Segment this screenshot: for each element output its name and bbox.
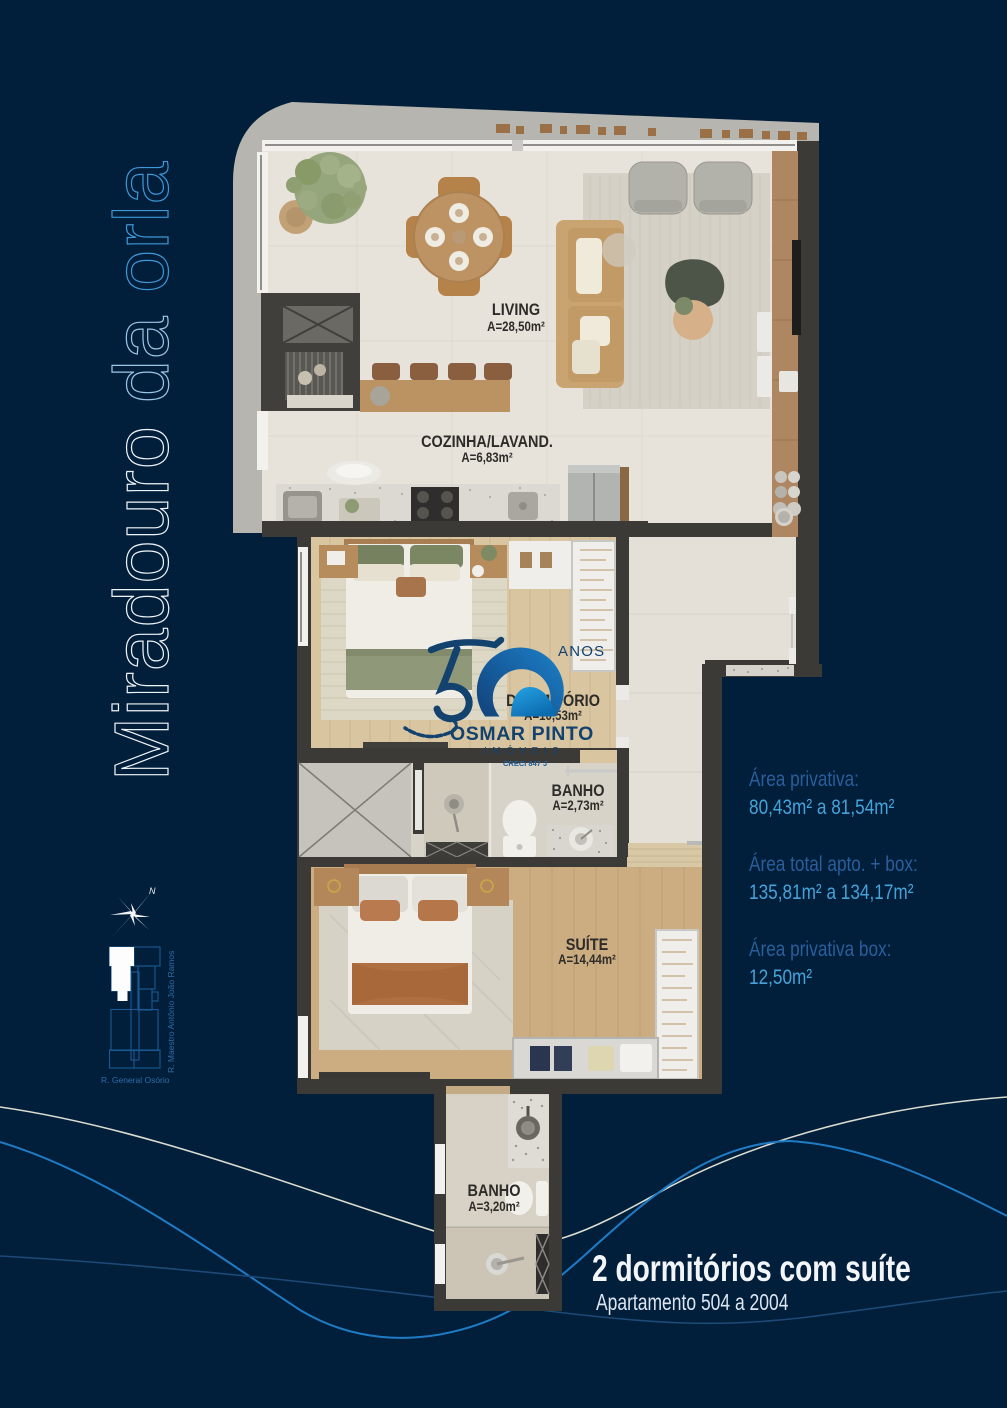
svg-text:COZINHA/LAVAND.: COZINHA/LAVAND. <box>421 433 553 451</box>
svg-text:BANHO: BANHO <box>468 1182 521 1200</box>
svg-text:N: N <box>149 886 156 896</box>
svg-text:ANOS: ANOS <box>558 643 605 660</box>
svg-text:CRECI 847 J: CRECI 847 J <box>503 759 547 768</box>
svg-text:A=14,44m²: A=14,44m² <box>558 952 616 967</box>
svg-text:R. General Osório: R. General Osório <box>101 1075 170 1085</box>
svg-text:A=28,50m²: A=28,50m² <box>487 319 545 334</box>
svg-text:IMÓVEIS: IMÓVEIS <box>484 744 564 757</box>
svg-text:R. Maestro Antônio João Ramos: R. Maestro Antônio João Ramos <box>166 951 176 1073</box>
svg-text:A=3,20m²: A=3,20m² <box>468 1199 519 1214</box>
svg-text:OSMAR PINTO: OSMAR PINTO <box>450 723 594 745</box>
svg-text:A=2,73m²: A=2,73m² <box>552 798 603 813</box>
svg-text:A=6,83m²: A=6,83m² <box>461 450 512 465</box>
svg-text:LIVING: LIVING <box>492 301 540 319</box>
